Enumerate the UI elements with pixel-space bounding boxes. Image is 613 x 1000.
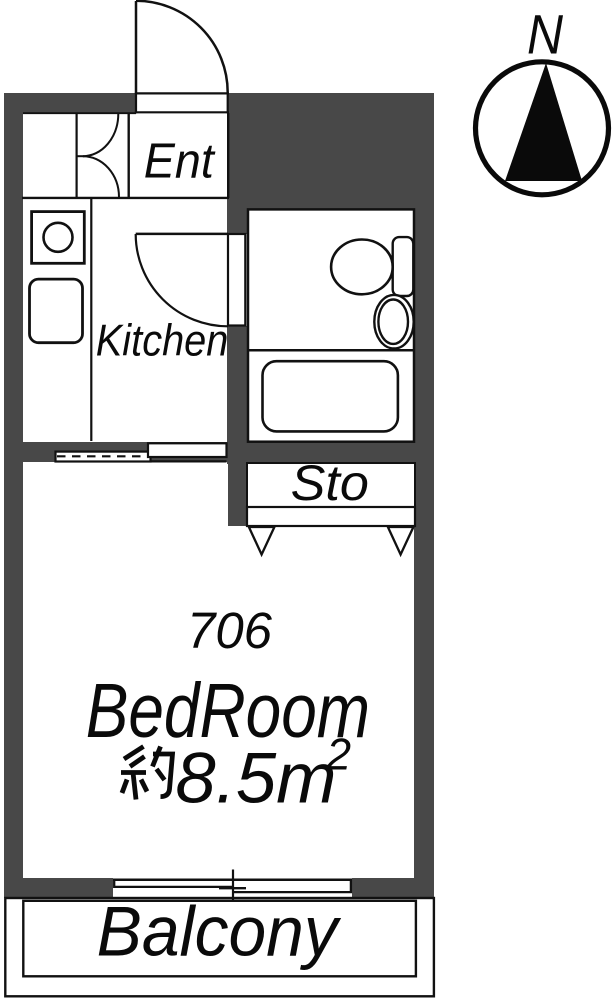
svg-text:2: 2 xyxy=(325,731,351,780)
svg-text:Ent: Ent xyxy=(144,134,216,189)
svg-text:Balcony: Balcony xyxy=(97,893,342,972)
svg-text:8.5m: 8.5m xyxy=(175,739,336,818)
svg-text:N: N xyxy=(527,3,563,66)
svg-text:Sto: Sto xyxy=(291,455,369,511)
svg-text:706: 706 xyxy=(187,602,272,659)
